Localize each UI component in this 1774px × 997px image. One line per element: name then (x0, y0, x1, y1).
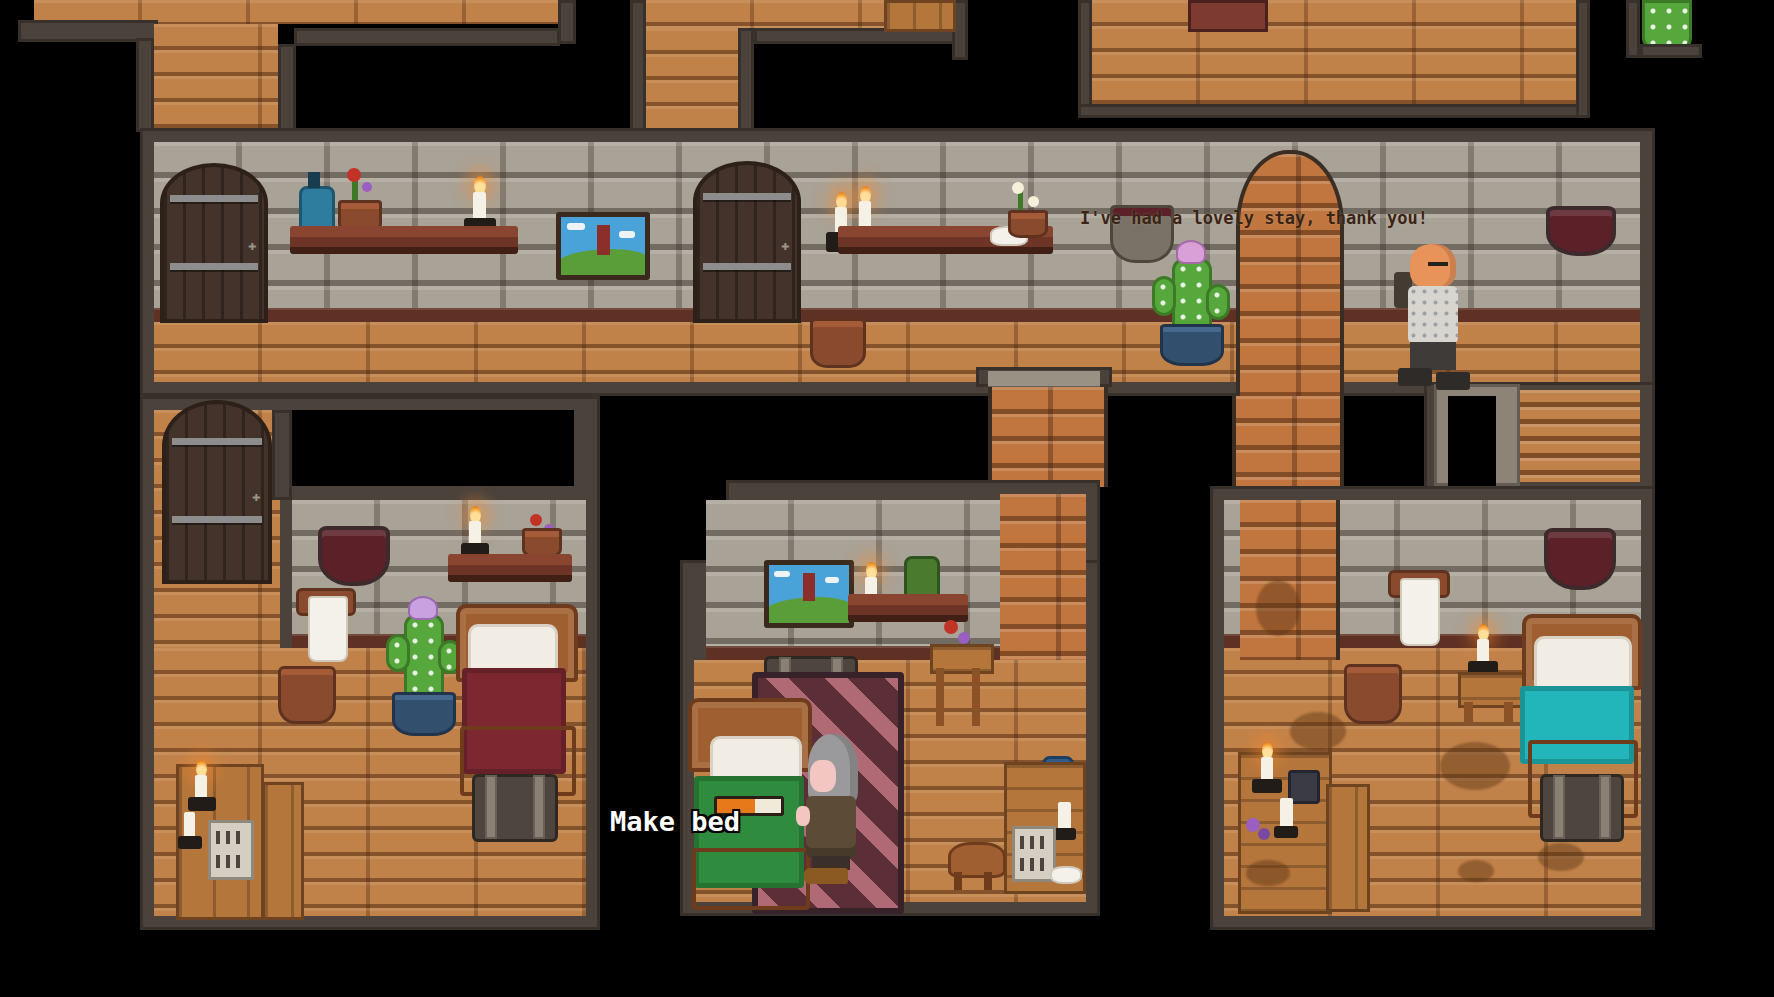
cactus-arm (1206, 284, 1230, 320)
bench-edge (884, 0, 956, 32)
brick-archway (1236, 150, 1344, 400)
stool-leg (954, 872, 962, 890)
floor-stain (1440, 742, 1510, 790)
clay-pot (1344, 664, 1402, 724)
towel (308, 596, 348, 662)
wall-shelf (290, 226, 518, 254)
candle-holder (1274, 826, 1298, 838)
door-handle-icon: ✚ (781, 239, 793, 251)
clay-pot (810, 318, 866, 368)
bench[interactable] (1326, 784, 1370, 912)
left-room-door[interactable]: ✚ (162, 400, 272, 584)
room-border (278, 44, 296, 132)
cactus-corner (1642, 0, 1692, 50)
landscape-painting (556, 212, 650, 280)
staircase[interactable] (1516, 390, 1640, 482)
cactus-arm (1152, 276, 1176, 316)
door-handle-icon: ✚ (252, 490, 264, 502)
brick-passage-inner (1000, 494, 1086, 660)
storage-chest[interactable] (1540, 774, 1624, 842)
wall-table-leg (936, 668, 944, 726)
hallway-door-middle[interactable]: ✚ (693, 161, 801, 323)
guest-head (1410, 244, 1456, 288)
brick-passage (988, 387, 1108, 487)
light-switch[interactable] (208, 820, 254, 880)
white-flower (1012, 182, 1024, 194)
room-border (272, 410, 292, 500)
cactus-flower (1176, 240, 1206, 264)
white-flower (1028, 196, 1039, 207)
privacy-screen (262, 782, 304, 920)
cactus-flower (408, 596, 438, 620)
cactus-planter (392, 692, 456, 736)
towel (1400, 578, 1440, 646)
room-border (558, 0, 576, 44)
purple-flower (1258, 828, 1270, 840)
game-viewport: ✚ ✚ (0, 0, 1774, 997)
wall-table-leg (972, 668, 980, 726)
room-border (1576, 0, 1590, 118)
blue-bottle-neck (308, 172, 320, 188)
bench-edge (1188, 0, 1268, 32)
top-room-floor (1092, 0, 1576, 104)
floor-stain (1458, 860, 1494, 882)
room-border (630, 0, 646, 132)
floor-stain (1246, 860, 1290, 886)
room-border (738, 28, 754, 132)
bed-footboard (692, 848, 810, 910)
nightstand-leg (1504, 702, 1513, 724)
maid-face (810, 760, 836, 792)
room-border (1626, 0, 1640, 58)
maid-npc[interactable] (802, 734, 866, 886)
red-flower (347, 168, 361, 182)
hallway-door-left[interactable]: ✚ (160, 163, 268, 323)
room-border (294, 28, 560, 46)
clay-pot (278, 666, 336, 724)
top-corridor-floor (154, 24, 278, 132)
candle-holder (1252, 779, 1282, 793)
purple-flower (362, 182, 372, 192)
npc-speech-text: I've had a lovely stay, thank you! (1080, 208, 1428, 228)
landscape-painting (764, 560, 854, 628)
door-handle-icon: ✚ (248, 239, 260, 251)
room-border (136, 38, 154, 132)
room-border (1078, 104, 1590, 118)
maid-dress (806, 796, 856, 858)
guest-boot (1436, 372, 1470, 390)
nightstand-leg (1464, 702, 1473, 724)
floor-stain (1538, 843, 1584, 871)
guest-shirt (1408, 286, 1458, 344)
candle-sconce (188, 797, 216, 811)
guest-npc[interactable] (1392, 244, 1476, 392)
guest-pants (1410, 342, 1456, 370)
purple-flower (958, 632, 970, 644)
guest-eyes (1428, 262, 1448, 266)
wall-bowl (1544, 528, 1616, 590)
cactus-planter (1160, 324, 1224, 366)
wall-bowl (1546, 206, 1616, 256)
stool-leg (984, 872, 992, 890)
stairwell-hole (1448, 396, 1496, 486)
wall-bowl (318, 526, 390, 586)
top-corridor-floor (646, 28, 738, 132)
plate (1050, 866, 1082, 884)
void (292, 410, 574, 486)
candle-sconce (178, 836, 202, 849)
cactus-arm (386, 634, 410, 672)
maid-hand (796, 806, 810, 826)
room-border (1078, 0, 1092, 118)
storage-chest[interactable] (472, 774, 558, 842)
wall-shelf (848, 594, 968, 622)
flower-pot (1008, 210, 1048, 238)
wall-stain (1256, 580, 1300, 636)
red-flower (944, 620, 958, 634)
wall-shelf (448, 554, 572, 582)
red-flower (530, 514, 542, 526)
room-border (1640, 44, 1702, 58)
guest-boot (1398, 368, 1432, 386)
brick-passage (1232, 396, 1344, 488)
maid-boot (804, 868, 848, 884)
brick-passage-inner (1240, 500, 1340, 660)
make-bed-label: Make bed (610, 806, 740, 837)
floor-stain (1290, 712, 1346, 750)
